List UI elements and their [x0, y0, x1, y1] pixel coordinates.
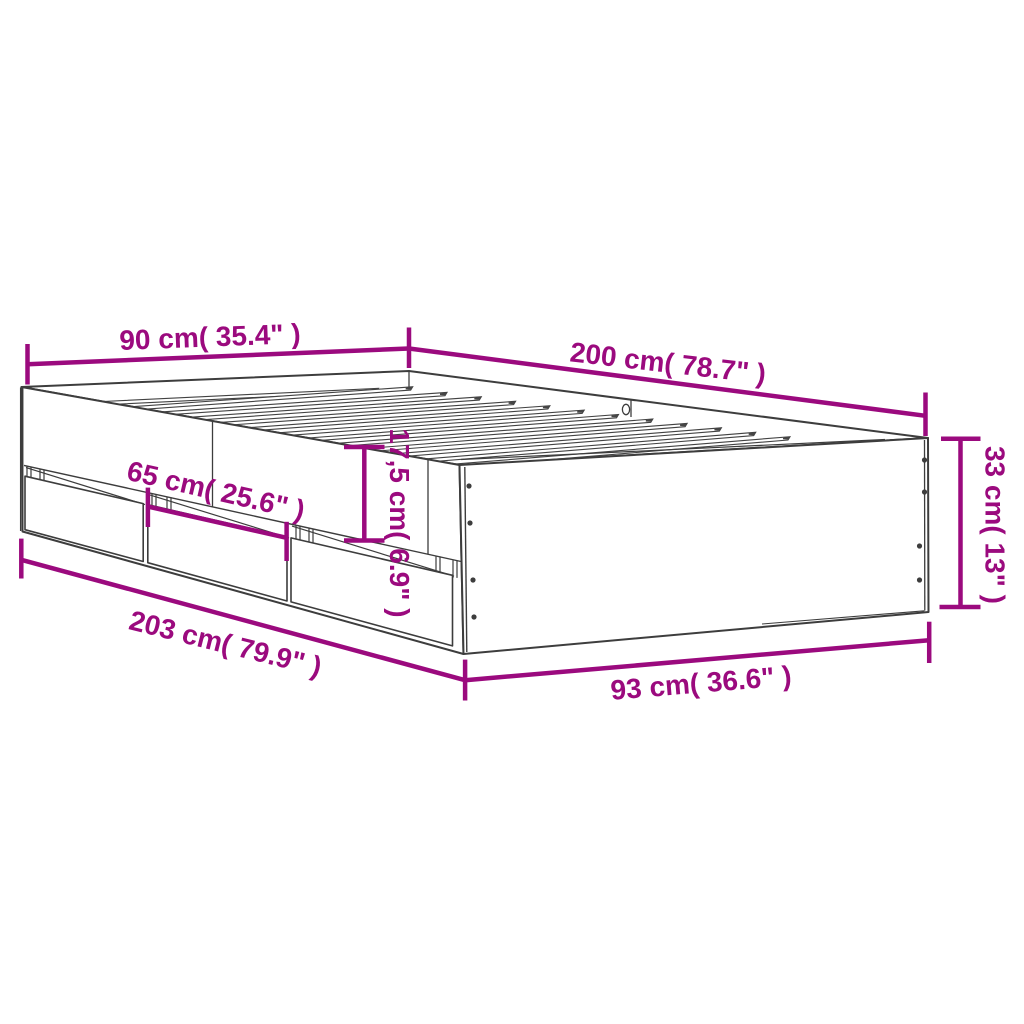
svg-text:17,5 cm( 6.9" ): 17,5 cm( 6.9" )	[384, 428, 415, 617]
svg-text:33 cm( 13" ): 33 cm( 13" )	[980, 446, 1011, 604]
